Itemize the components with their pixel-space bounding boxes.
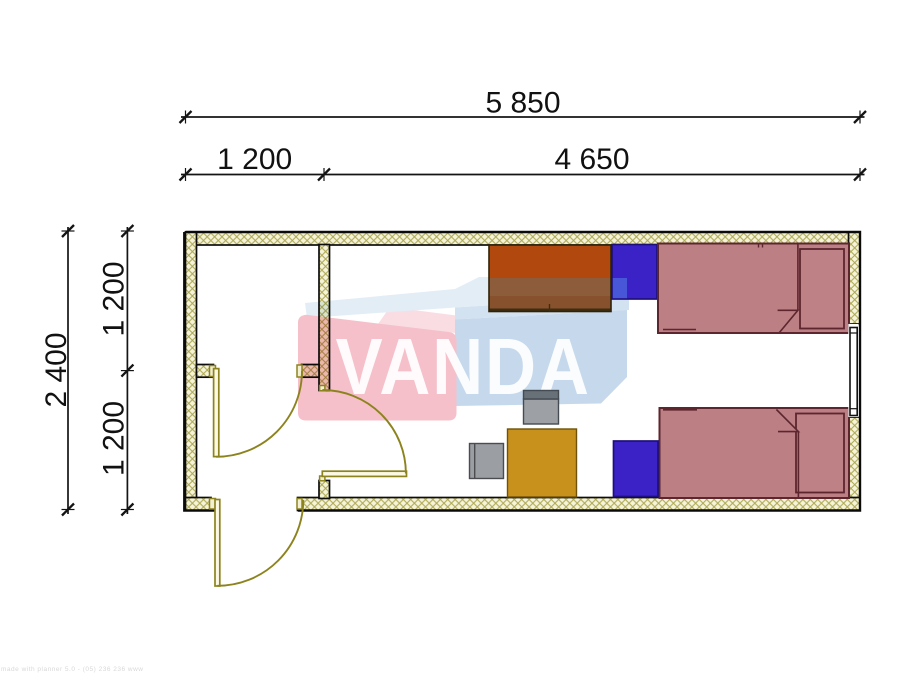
svg-text:4 650: 4 650 xyxy=(554,143,629,176)
svg-text:1 200: 1 200 xyxy=(217,143,292,176)
svg-text:5 850: 5 850 xyxy=(485,87,560,120)
svg-text:2 400: 2 400 xyxy=(40,332,73,407)
svg-text:1 200: 1 200 xyxy=(98,261,131,336)
svg-text:made with planner 5.0 - (05) 2: made with planner 5.0 - (05) 236 236 www xyxy=(1,666,143,673)
svg-text:1 200: 1 200 xyxy=(98,401,131,476)
